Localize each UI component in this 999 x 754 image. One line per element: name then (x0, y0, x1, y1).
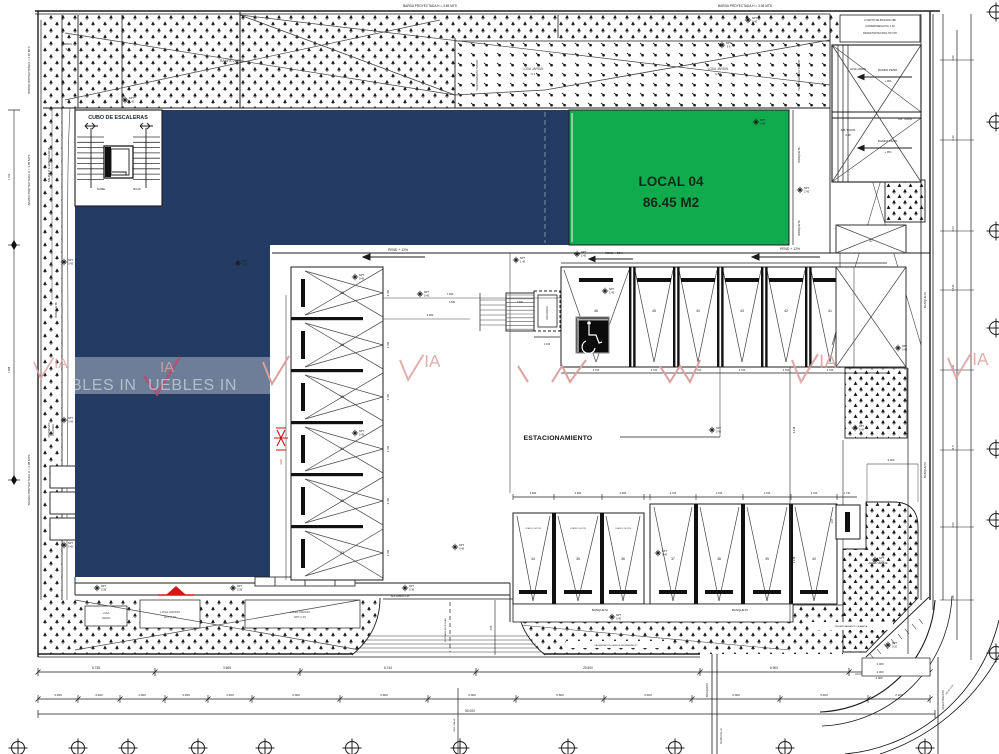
svg-text:1.100: 1.100 (544, 342, 551, 346)
svg-text:32: 32 (340, 499, 344, 503)
svg-text:28: 28 (340, 291, 344, 295)
svg-text:NPT: NPT (581, 250, 587, 254)
svg-text:NPT: NPT (662, 549, 668, 553)
svg-text:ENTRADA VEHICULAR: ENTRADA VEHICULAR (444, 618, 447, 642)
svg-text:NPT: NPT (237, 584, 243, 588)
svg-text:S.B. TRANS: S.B. TRANS (898, 117, 913, 121)
svg-text:NPT: NPT (359, 273, 365, 277)
svg-text:29: 29 (340, 343, 344, 347)
svg-text:34: 34 (531, 557, 535, 561)
svg-text:1.45: 1.45 (581, 254, 587, 258)
svg-text:2.700: 2.700 (651, 368, 658, 372)
svg-text:S.B. TRANS: S.B. TRANS (841, 128, 856, 132)
svg-text:0.38: 0.38 (101, 588, 107, 592)
svg-text:BARDA PROYECTADA H = 3.65 MTS: BARDA PROYECTADA H = 3.65 MTS (403, 4, 457, 8)
svg-text:1.00: 1.00 (951, 595, 955, 601)
svg-text:CUBO DE ESCALERAS: CUBO DE ESCALERAS (88, 115, 148, 121)
svg-text:0.45: 0.45 (359, 277, 365, 281)
svg-text:0.45: 0.45 (68, 420, 74, 424)
svg-text:NPT: NPT (716, 426, 722, 430)
svg-text:ESTACIONAMIENTO: ESTACIONAMIENTO (524, 435, 593, 442)
svg-text:4.000: 4.000 (138, 693, 146, 697)
svg-text:6.400: 6.400 (644, 693, 652, 697)
svg-text:NPT: NPT (459, 543, 465, 547)
svg-text:PENETRAMIENTO TRANSP.: PENETRAMIENTO TRANSP. (798, 59, 801, 91)
svg-text:IA: IA (819, 352, 837, 373)
svg-text:NPT: NPT (804, 186, 810, 190)
svg-text:3.148: 3.148 (792, 556, 796, 563)
svg-text:PERIMETRAMIENTO LA BARDA: PERIMETRAMIENTO LA BARDA (835, 625, 868, 628)
svg-text:36: 36 (621, 557, 625, 561)
svg-text:BANQUETA: BANQUETA (797, 147, 801, 162)
svg-text:2.700: 2.700 (670, 491, 677, 495)
svg-text:43: 43 (740, 309, 744, 313)
svg-text:2.700: 2.700 (783, 368, 790, 372)
svg-text:3.000: 3.000 (877, 662, 884, 666)
svg-text:LOSA JARDIN: LOSA JARDIN (850, 68, 866, 71)
svg-text:2.700: 2.700 (764, 491, 771, 495)
svg-text:50.000: 50.000 (465, 709, 475, 713)
svg-text:ARBOL: ARBOL (64, 42, 73, 46)
svg-text:CUADRO NORTE: CUADRO NORTE (615, 527, 632, 530)
svg-text:BANQUETA: BANQUETA (923, 292, 927, 308)
svg-text:NPT: NPT (609, 287, 615, 291)
svg-text:44: 44 (696, 309, 700, 313)
svg-text:PEND + 12%: PEND + 12% (388, 248, 408, 252)
svg-text:BANQUETA: BANQUETA (732, 608, 748, 612)
svg-text:45: 45 (652, 309, 656, 313)
svg-text:NPT: NPT (726, 41, 732, 45)
svg-text:3.760: 3.760 (386, 549, 390, 556)
svg-text:NPT: NPT (879, 556, 885, 560)
svg-text:NPT: NPT (129, 96, 135, 100)
svg-text:5.400: 5.400 (820, 693, 828, 697)
svg-text:1.45: 1.45 (520, 260, 526, 264)
svg-text:46: 46 (594, 309, 598, 313)
svg-text:BANQUETA: BANQUETA (923, 462, 927, 478)
svg-text:25.500: 25.500 (583, 666, 593, 670)
svg-text:BAJA: BAJA (133, 187, 141, 191)
svg-text:3.760: 3.760 (386, 445, 390, 452)
svg-text:2.100: 2.100 (895, 693, 903, 697)
svg-text:7.700: 7.700 (7, 173, 11, 180)
svg-text:NPT: NPT (616, 613, 622, 617)
svg-text:3.760: 3.760 (386, 497, 390, 504)
svg-text:4.300: 4.300 (877, 670, 884, 674)
svg-text:1.45: 1.45 (129, 100, 135, 104)
svg-text:PAVIMENTACION LIBRE DE SEMIPAV: PAVIMENTACION LIBRE DE SEMIPAVIMENTO (595, 644, 638, 647)
svg-text:BARDA PROYECTADA H = 3.08 MTS: BARDA PROYECTADA H = 3.08 MTS (718, 4, 772, 8)
svg-text:REVESTIMIENTO: REVESTIMIENTO (942, 690, 945, 710)
svg-text:0.45: 0.45 (424, 294, 430, 298)
svg-text:MEDIA CALLE: MEDIA CALLE (720, 728, 723, 744)
svg-text:MED. CALLE: MED. CALLE (453, 718, 456, 732)
svg-text:BANQUETA: BANQUETA (705, 683, 709, 697)
svg-text:2.900: 2.900 (530, 491, 537, 495)
svg-text:0.38: 0.38 (409, 588, 415, 592)
svg-text:2.900: 2.900 (575, 491, 582, 495)
svg-text:NPT: NPT (242, 259, 248, 263)
svg-text:6.000: 6.000 (427, 313, 434, 317)
svg-text:3.04: 3.04 (951, 226, 955, 232)
svg-text:SUBE: SUBE (97, 187, 105, 191)
svg-text:NPT: NPT (859, 424, 865, 428)
svg-text:3.50: 3.50 (951, 522, 955, 528)
svg-text:9.314: 9.314 (951, 284, 955, 291)
svg-text:IA: IA (424, 352, 441, 371)
svg-text:BARDA PROYECTADA H = 3.65 MTS: BARDA PROYECTADA H = 3.65 MTS (27, 46, 31, 93)
svg-text:0.45: 0.45 (859, 428, 865, 432)
svg-text:(ANTEBODEGUITA) 1.40: (ANTEBODEGUITA) 1.40 (865, 24, 895, 28)
svg-text:0.45: 0.45 (68, 545, 74, 549)
svg-text:RAMPA PEND.: RAMPA PEND. (878, 68, 898, 72)
svg-text:0.45: 0.45 (902, 348, 908, 352)
svg-text:BANQUETA: BANQUETA (592, 608, 608, 612)
svg-text:3.65: 3.65 (65, 47, 71, 51)
svg-text:86.45 M2: 86.45 M2 (643, 195, 699, 210)
svg-text:CUADRO NORTE: CUADRO NORTE (570, 527, 587, 530)
svg-text:IA: IA (972, 350, 989, 369)
svg-text:3.760: 3.760 (386, 289, 390, 296)
svg-text:3.665: 3.665 (223, 666, 231, 670)
svg-text:JARDIN: JARDIN (102, 617, 111, 620)
svg-text:UEBLES IN: UEBLES IN (148, 377, 237, 394)
svg-text:6.500: 6.500 (556, 693, 564, 697)
svg-text:NPT: NPT (902, 344, 908, 348)
svg-text:6.738: 6.738 (92, 666, 100, 670)
svg-text:N.14: N.14 (715, 72, 722, 76)
svg-text:SALIDA D E EMERGENCIA: SALIDA D E EMERGENCIA (47, 147, 51, 182)
svg-text:BANQUETA: BANQUETA (797, 220, 801, 235)
svg-text:41: 41 (828, 309, 832, 313)
svg-text:37: 37 (671, 557, 675, 561)
svg-text:7.000: 7.000 (447, 292, 454, 296)
svg-text:2.60: 2.60 (279, 459, 283, 465)
svg-text:NPT: NPT (68, 258, 74, 262)
svg-text:3.400: 3.400 (95, 693, 103, 697)
svg-text:40: 40 (812, 557, 816, 561)
svg-text:0.45: 0.45 (616, 617, 622, 621)
svg-text:CUADRO NORTE: CUADRO NORTE (525, 527, 542, 530)
svg-text:4.000: 4.000 (876, 676, 883, 680)
svg-text:NPT: NPT (752, 16, 758, 20)
svg-text:30: 30 (340, 395, 344, 399)
svg-text:LOSA JARDIN: LOSA JARDIN (523, 67, 544, 71)
svg-text:0.45: 0.45 (459, 547, 465, 551)
svg-text:4.400: 4.400 (226, 693, 234, 697)
svg-text:3.500: 3.500 (517, 301, 524, 304)
svg-text:BARDA PROYECTADA H = 3.65 MTS: BARDA PROYECTADA H = 3.65 MTS (27, 155, 31, 206)
svg-text:2.45: 2.45 (804, 190, 810, 194)
svg-text:EST: EST (831, 518, 834, 523)
svg-text:NPT 0.45: NPT 0.45 (294, 615, 306, 619)
svg-text:3.65: 3.65 (490, 625, 493, 630)
svg-text:NPT: NPT (409, 584, 415, 588)
svg-text:PAVIMENTO: PAVIMENTO (47, 423, 51, 438)
svg-text:+ 8%: + 8% (885, 150, 892, 154)
svg-text:47: 47 (869, 239, 873, 243)
svg-text:0.45: 0.45 (752, 20, 758, 24)
svg-text:NPT: NPT (101, 584, 107, 588)
svg-text:LOCAL 04: LOCAL 04 (638, 174, 704, 189)
svg-text:0.45: 0.45 (662, 553, 668, 557)
svg-text:6.000: 6.000 (292, 693, 300, 697)
svg-text:PEND + 12%: PEND + 12% (780, 247, 800, 251)
svg-text:NPT: NPT (520, 256, 526, 260)
svg-text:3.90: 3.90 (951, 55, 955, 61)
svg-text:2.45: 2.45 (760, 122, 766, 126)
svg-text:LOSA JARDIN: LOSA JARDIN (708, 67, 729, 71)
svg-text:2.900: 2.900 (620, 491, 627, 495)
svg-text:6.900: 6.900 (770, 666, 778, 670)
svg-text:3.148: 3.148 (792, 426, 796, 433)
svg-text:CUARTO DE BASURA 1B0: CUARTO DE BASURA 1B0 (864, 18, 896, 22)
svg-text:2.700: 2.700 (716, 491, 723, 495)
svg-text:NPT: NPT (892, 641, 898, 645)
svg-text:6.900: 6.900 (380, 693, 388, 697)
svg-text:RAMPA VERDE: RAMPA VERDE (220, 59, 245, 63)
svg-text:3.760: 3.760 (386, 393, 390, 400)
svg-text:PENETRAMIENTO TRANSP.: PENETRAMIENTO TRANSP. (476, 59, 479, 91)
svg-text:PEND + 12%: PEND + 12% (605, 251, 623, 255)
svg-text:0.38: 0.38 (845, 133, 851, 137)
svg-text:N.4: N.4 (531, 72, 536, 76)
svg-text:2.700: 2.700 (811, 491, 818, 495)
svg-text:31: 31 (340, 447, 344, 451)
svg-text:BLES IN: BLES IN (71, 377, 137, 394)
svg-text:0.45: 0.45 (716, 430, 722, 434)
svg-text:0.45: 0.45 (68, 262, 74, 266)
svg-text:RAMPA PEND.: RAMPA PEND. (878, 139, 898, 143)
svg-text:39: 39 (765, 557, 769, 561)
svg-text:38: 38 (717, 557, 721, 561)
svg-text:0.20: 0.20 (879, 560, 885, 564)
svg-text:9.000: 9.000 (888, 458, 895, 462)
svg-text:IA: IA (160, 359, 174, 376)
svg-text:NPT: NPT (68, 541, 74, 545)
svg-text:0.38: 0.38 (242, 263, 248, 267)
svg-text:ASCENSOR: ASCENSOR (546, 306, 549, 320)
svg-text:35: 35 (576, 557, 580, 561)
svg-text:2.700: 2.700 (593, 368, 600, 372)
svg-text:6.000: 6.000 (732, 693, 740, 697)
svg-text:3.760: 3.760 (386, 341, 390, 348)
svg-text:33: 33 (340, 551, 344, 555)
svg-text:+ 8%: + 8% (885, 79, 892, 83)
svg-text:3.930: 3.930 (182, 693, 190, 697)
svg-text:NPT: NPT (424, 290, 430, 294)
svg-text:3.500: 3.500 (449, 301, 456, 304)
svg-text:6.000: 6.000 (468, 693, 476, 697)
svg-text:LOSA: LOSA (103, 612, 110, 615)
svg-text:2.700: 2.700 (739, 368, 746, 372)
svg-text:14.5: 14.5 (951, 445, 955, 451)
svg-text:CALZADA: CALZADA (51, 424, 55, 436)
svg-text:6.744: 6.744 (384, 666, 392, 670)
svg-text:5.40: 5.40 (951, 135, 955, 141)
svg-text:NPT: NPT (359, 429, 365, 433)
svg-text:0.38: 0.38 (237, 588, 243, 592)
svg-text:42: 42 (784, 309, 788, 313)
svg-text:BANQUETA: BANQUETA (54, 302, 58, 317)
svg-text:1.45: 1.45 (609, 291, 615, 295)
svg-text:NPT: NPT (760, 118, 766, 122)
svg-text:3.930: 3.930 (54, 693, 62, 697)
svg-text:NPT: NPT (68, 416, 74, 420)
svg-text:IA: IA (54, 356, 68, 372)
svg-text:0.20: 0.20 (892, 645, 898, 649)
svg-text:BARDA PROYECTADA H.P 3.65: BARDA PROYECTADA H.P 3.65 (863, 32, 897, 35)
svg-text:1.730: 1.730 (844, 492, 851, 495)
svg-text:LOSA JARDIN: LOSA JARDIN (160, 610, 180, 614)
svg-text:0.45: 0.45 (359, 433, 365, 437)
svg-text:BARDA PROYECTADA H = 3.08 MTS: BARDA PROYECTADA H = 3.08 MTS (27, 455, 31, 506)
svg-text:3.6: 3.6 (727, 45, 731, 49)
svg-text:7.388: 7.388 (7, 366, 11, 373)
